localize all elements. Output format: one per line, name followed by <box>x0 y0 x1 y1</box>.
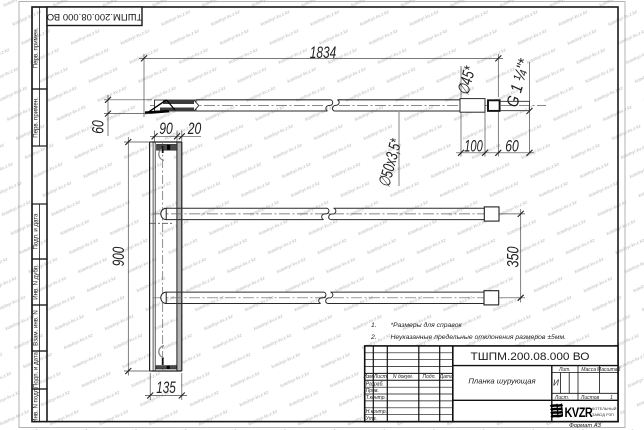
svg-text:Листов: Листов <box>580 395 600 401</box>
svg-text:Подп. и дата: Подп. и дата <box>33 351 40 388</box>
svg-text:ЗАВОД РЗП: ЗАВОД РЗП <box>592 412 614 417</box>
svg-text:900: 900 <box>110 246 128 266</box>
svg-text:350: 350 <box>505 246 523 268</box>
svg-text:Перв. примен.: Перв. примен. <box>33 97 40 138</box>
svg-text:20: 20 <box>187 120 202 138</box>
svg-text:Лит.: Лит. <box>558 367 571 373</box>
svg-text:1834: 1834 <box>310 44 337 62</box>
svg-text:60: 60 <box>505 138 519 156</box>
svg-text:Перв. примен.: Перв. примен. <box>33 27 40 68</box>
svg-text:100: 100 <box>464 138 483 156</box>
svg-text:Масса: Масса <box>581 367 596 373</box>
svg-text:И: И <box>553 379 559 388</box>
svg-text:1.: 1. <box>371 322 377 329</box>
svg-text:КОТЕЛЬНЫЙ: КОТЕЛЬНЫЙ <box>592 406 617 411</box>
svg-text:ТШПМ.200.08.000 ВО: ТШПМ.200.08.000 ВО <box>471 351 590 363</box>
svg-text:Разраб.: Разраб. <box>366 381 384 387</box>
svg-text:90: 90 <box>159 120 173 138</box>
svg-text:Инв. N дубл.: Инв. N дубл. <box>33 264 40 300</box>
svg-text:Формат А3: Формат А3 <box>569 423 601 429</box>
svg-text:Инв. N подл.: Инв. N подл. <box>33 387 40 423</box>
svg-text:135: 135 <box>156 379 176 397</box>
svg-text:Лист.: Лист. <box>554 395 569 401</box>
svg-text:Масштаб: Масштаб <box>597 367 621 373</box>
svg-text:KVZR: KVZR <box>565 405 593 421</box>
svg-text:Неуказанные предельные отклоне: Неуказанные предельные отклонения размер… <box>391 333 567 341</box>
svg-text:Н.контр.: Н.контр. <box>366 409 387 415</box>
svg-text:Пров.: Пров. <box>366 388 379 394</box>
svg-text:*Размеры для справок: *Размеры для справок <box>391 321 463 329</box>
svg-text:Планка шурующая: Планка шурующая <box>468 377 535 386</box>
svg-text:Подп. и дата: Подп. и дата <box>33 213 40 250</box>
svg-text:2.: 2. <box>370 334 377 341</box>
svg-text:Подп.: Подп. <box>423 374 436 380</box>
svg-text:Утв.: Утв. <box>366 416 377 422</box>
svg-text:N докум.: N докум. <box>393 374 413 380</box>
svg-text:Изм.: Изм. <box>363 374 374 380</box>
svg-text:1: 1 <box>610 395 613 401</box>
svg-text:Дата: Дата <box>439 374 453 380</box>
svg-text:Взам. инв. N: Взам. инв. N <box>33 310 40 346</box>
svg-text:Лист: Лист <box>373 374 387 380</box>
svg-text:ТШПМ.200.08.000 ВО: ТШПМ.200.08.000 ВО <box>47 11 143 22</box>
svg-text:Т.контр.: Т.контр. <box>366 395 386 401</box>
svg-text:60: 60 <box>90 120 108 134</box>
